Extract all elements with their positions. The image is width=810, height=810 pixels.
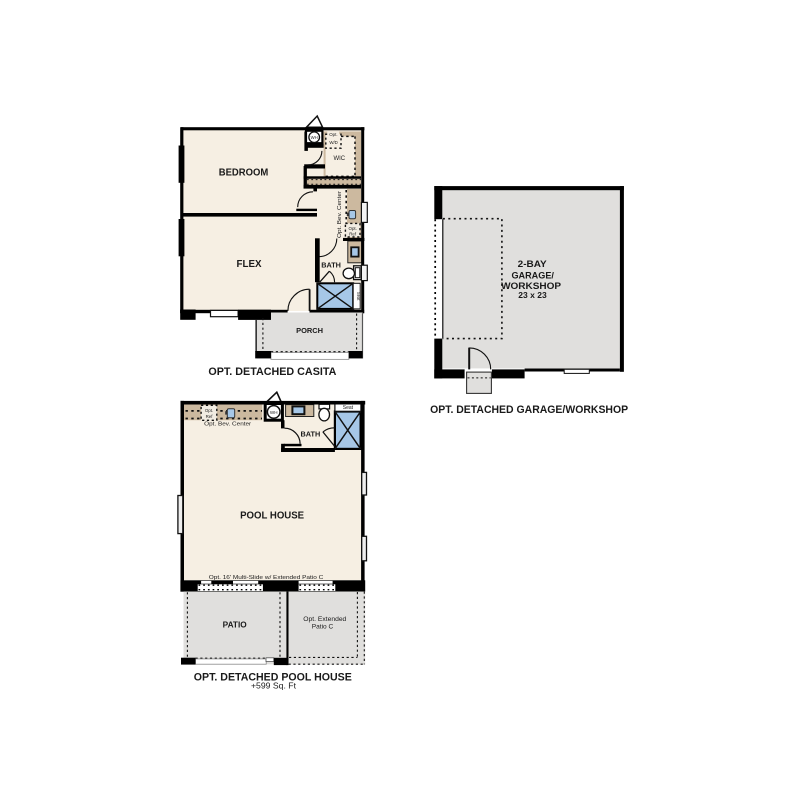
svg-text:Opt. Bev. Center: Opt. Bev. Center (337, 191, 343, 238)
svg-text:Opt.: Opt. (349, 226, 357, 231)
svg-text:Opt.: Opt. (329, 132, 337, 137)
svg-text:+599 Sq. Ft: +599 Sq. Ft (251, 681, 297, 691)
svg-text:WH: WH (311, 135, 318, 140)
svg-text:PATIO: PATIO (223, 620, 247, 629)
svg-text:Ref: Ref (349, 232, 357, 237)
svg-text:OPT. DETACHED CASITA: OPT. DETACHED CASITA (208, 366, 336, 378)
svg-text:Opt.: Opt. (205, 408, 213, 413)
svg-text:23 x 23: 23 x 23 (518, 291, 547, 300)
svg-text:2-BAY: 2-BAY (518, 258, 548, 269)
svg-text:WIC: WIC (333, 156, 345, 162)
svg-text:Seat: Seat (356, 292, 361, 301)
svg-text:BEDROOM: BEDROOM (219, 167, 269, 178)
svg-text:GARAGE/: GARAGE/ (511, 269, 554, 280)
svg-text:Opt. Extended: Opt. Extended (303, 616, 346, 623)
svg-text:Opt. 16' Multi-Slide w/ Extend: Opt. 16' Multi-Slide w/ Extended Patio C (209, 575, 324, 581)
svg-text:WH: WH (270, 410, 278, 415)
svg-text:Ref: Ref (206, 414, 214, 419)
svg-text:OPT. DETACHED GARAGE/WORKSHOP: OPT. DETACHED GARAGE/WORKSHOP (430, 404, 628, 416)
svg-text:Patio C: Patio C (312, 624, 334, 631)
svg-text:W/D: W/D (329, 140, 338, 145)
svg-text:Opt. Bev. Center: Opt. Bev. Center (204, 422, 251, 428)
svg-text:WORKSHOP: WORKSHOP (501, 280, 561, 291)
svg-text:Seat: Seat (343, 405, 354, 411)
svg-text:BATH: BATH (321, 260, 341, 269)
svg-text:BATH: BATH (301, 430, 321, 439)
svg-text:POOL HOUSE: POOL HOUSE (240, 511, 304, 522)
svg-text:FLEX: FLEX (237, 259, 262, 270)
svg-text:PORCH: PORCH (296, 326, 323, 335)
